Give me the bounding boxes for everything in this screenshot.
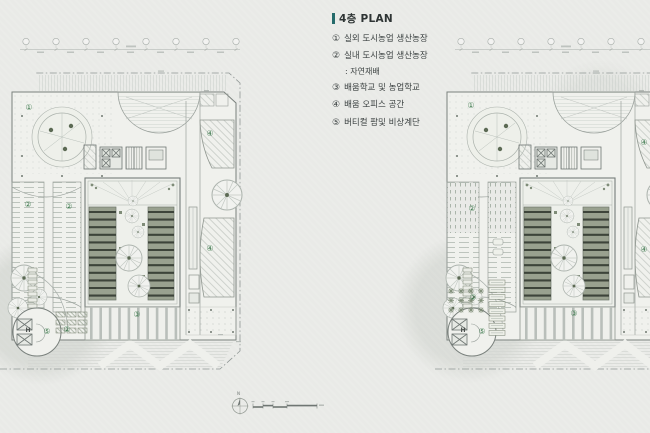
north-label: N <box>237 391 240 396</box>
legend-item-label: 버티컬 팜및 비상계단 <box>344 119 420 129</box>
site-plan-left: ①②②②③④④⑤H <box>0 35 313 375</box>
legend-item-number: ⑤ <box>332 118 340 128</box>
legend-item-note: : 자연재배 <box>345 66 472 77</box>
legend-title: 4층 PLAN <box>332 11 472 26</box>
legend-title-bar <box>332 13 335 24</box>
legend-item-number: ① <box>332 34 340 44</box>
legend-item: ①실외 도시농업 생산농장 <box>332 34 472 45</box>
legend-item-number: ④ <box>332 100 340 110</box>
legend-item: ④배움 오피스 공간 <box>332 100 472 111</box>
legend: 4층 PLAN ①실외 도시농업 생산농장②실내 도시농업 생산농장: 자연재배… <box>332 11 472 135</box>
legend-item-label: 배움학교 및 농업학교 <box>344 84 420 94</box>
legend-item-number: ② <box>332 51 340 61</box>
legend-item-label: 실내 도시농업 생산농장 <box>344 52 428 62</box>
scale-bar <box>253 404 317 409</box>
north-arrow-and-scale <box>225 393 335 419</box>
legend-item: ③배움학교 및 농업학교 <box>332 83 472 94</box>
legend-item: ⑤버티컬 팜및 비상계단 <box>332 118 472 129</box>
legend-item: ②실내 도시농업 생산농장 <box>332 51 472 62</box>
legend-title-text: 4층 PLAN <box>339 11 393 26</box>
page: { "legend": { "title": "4층 PLAN", "items… <box>0 0 650 433</box>
floor-plan-drawing-left <box>0 35 313 375</box>
legend-item-label: 배움 오피스 공간 <box>344 101 404 111</box>
legend-item-label: 실외 도시농업 생산농장 <box>344 35 428 45</box>
legend-item-number: ③ <box>332 83 340 93</box>
scale-bar-group: N <box>225 393 335 419</box>
legend-items: ①실외 도시농업 생산농장②실내 도시농업 생산농장: 자연재배③배움학교 및 … <box>332 34 472 128</box>
